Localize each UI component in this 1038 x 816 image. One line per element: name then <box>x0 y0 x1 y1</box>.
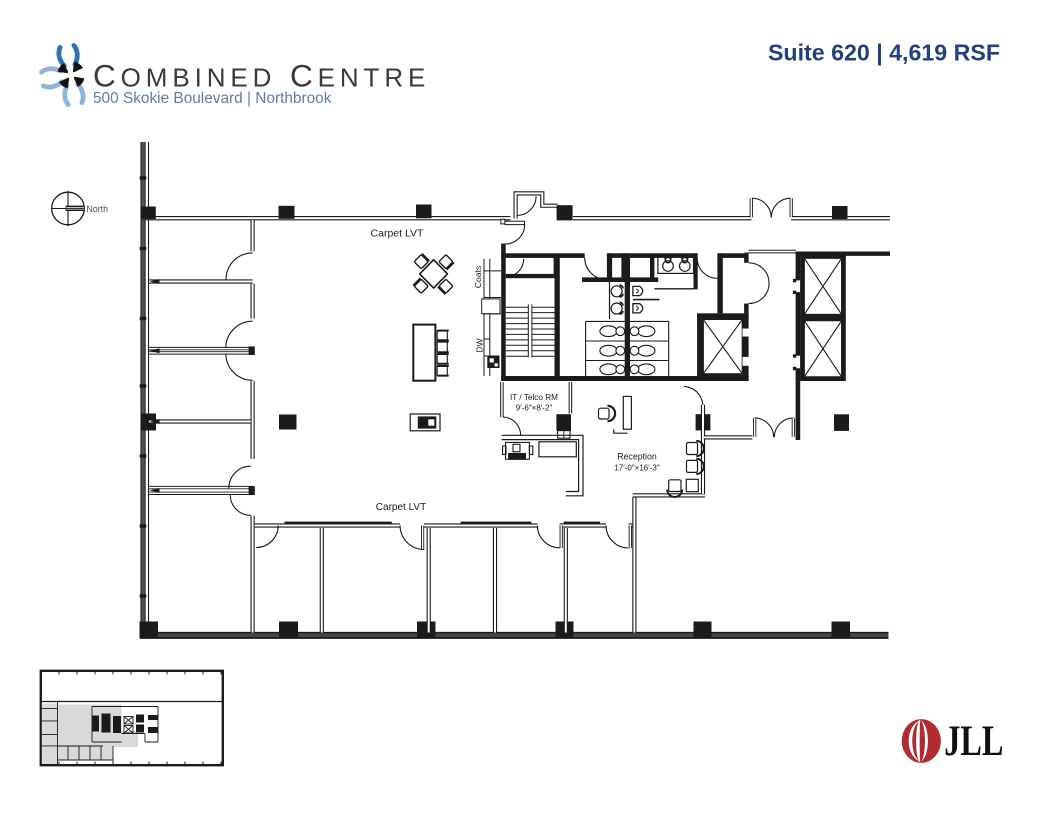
svg-text:IT / Telco RM: IT / Telco RM <box>510 393 558 402</box>
svg-text:DW: DW <box>475 337 485 352</box>
svg-text:9′-6″×8′-2″: 9′-6″×8′-2″ <box>516 404 553 413</box>
svg-text:17′-0″×16′-3″: 17′-0″×16′-3″ <box>614 464 660 473</box>
svg-text:500 Skokie Boulevard | Northbr: 500 Skokie Boulevard | Northbrook <box>93 90 332 107</box>
svg-text:JLL: JLL <box>944 718 1003 766</box>
svg-text:North: North <box>87 204 109 214</box>
svg-text:Carpet LVT: Carpet LVT <box>376 502 426 513</box>
svg-text:Carpet LVT: Carpet LVT <box>371 228 424 240</box>
svg-text:Coats: Coats <box>473 266 483 288</box>
svg-text:Reception: Reception <box>617 452 657 462</box>
svg-text:COMBINED CENTRE: COMBINED CENTRE <box>93 58 430 94</box>
svg-text:Suite 620 | 4,619 RSF: Suite 620 | 4,619 RSF <box>768 40 1000 66</box>
